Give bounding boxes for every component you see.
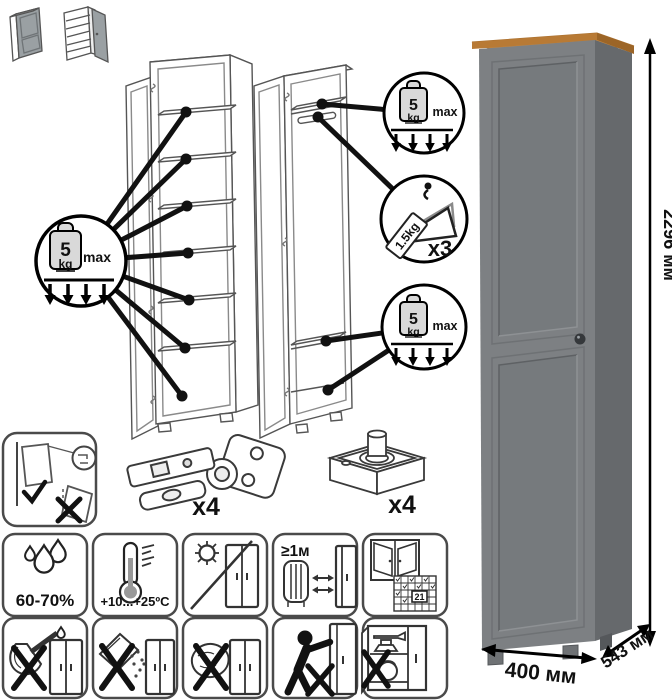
cabinet-side <box>595 40 632 641</box>
height-label: 2296 мм <box>660 209 672 281</box>
shelf-weight-callout-left: 5 kg max <box>36 216 126 306</box>
thumbnail-cabinet-open <box>64 7 108 62</box>
weight-max: max <box>432 105 457 119</box>
shelf-weight-callout-top: 5 kg max <box>384 73 464 153</box>
dimension-height: 2296 мм <box>644 38 672 647</box>
shelf-weight-callout-bottom: 5 kg max <box>382 285 466 369</box>
do-not-overload-icon <box>362 626 426 692</box>
hinge-count-label: x4 <box>192 493 220 521</box>
weight-max: max <box>432 319 457 333</box>
instruction-canvas: 5 kg max 5 kg max <box>0 0 672 700</box>
weight-unit: kg <box>407 326 419 338</box>
weight-unit: kg <box>407 112 419 124</box>
weight-max: max <box>83 249 111 265</box>
product-render <box>472 33 634 665</box>
foot-count-label: x4 <box>388 491 416 519</box>
hanger-count: x3 <box>428 236 452 261</box>
hanger-load-callout: 1.5kg x3 <box>381 176 467 262</box>
door-knob <box>575 334 586 345</box>
foot-part-icon <box>330 431 424 495</box>
ventilation-day: 21 <box>414 592 424 602</box>
anchor-to-wall-icon <box>3 433 96 526</box>
thumbnail-cabinet-closed <box>10 8 42 61</box>
humidity-label: 60-70% <box>16 591 75 610</box>
temperature-label: +10...+25ºC <box>100 594 170 609</box>
shelf-cabinet-diagram <box>126 55 258 439</box>
heater-distance-label: ≥1м <box>281 543 310 560</box>
width-label: 400 мм <box>504 658 578 688</box>
furniture-instruction-sheet: { "callouts": { "weight": { "value": "5"… <box>0 0 672 700</box>
dimension-width: 400 мм <box>481 644 597 689</box>
weight-unit: kg <box>58 257 72 271</box>
calendar: 21 <box>394 576 436 611</box>
